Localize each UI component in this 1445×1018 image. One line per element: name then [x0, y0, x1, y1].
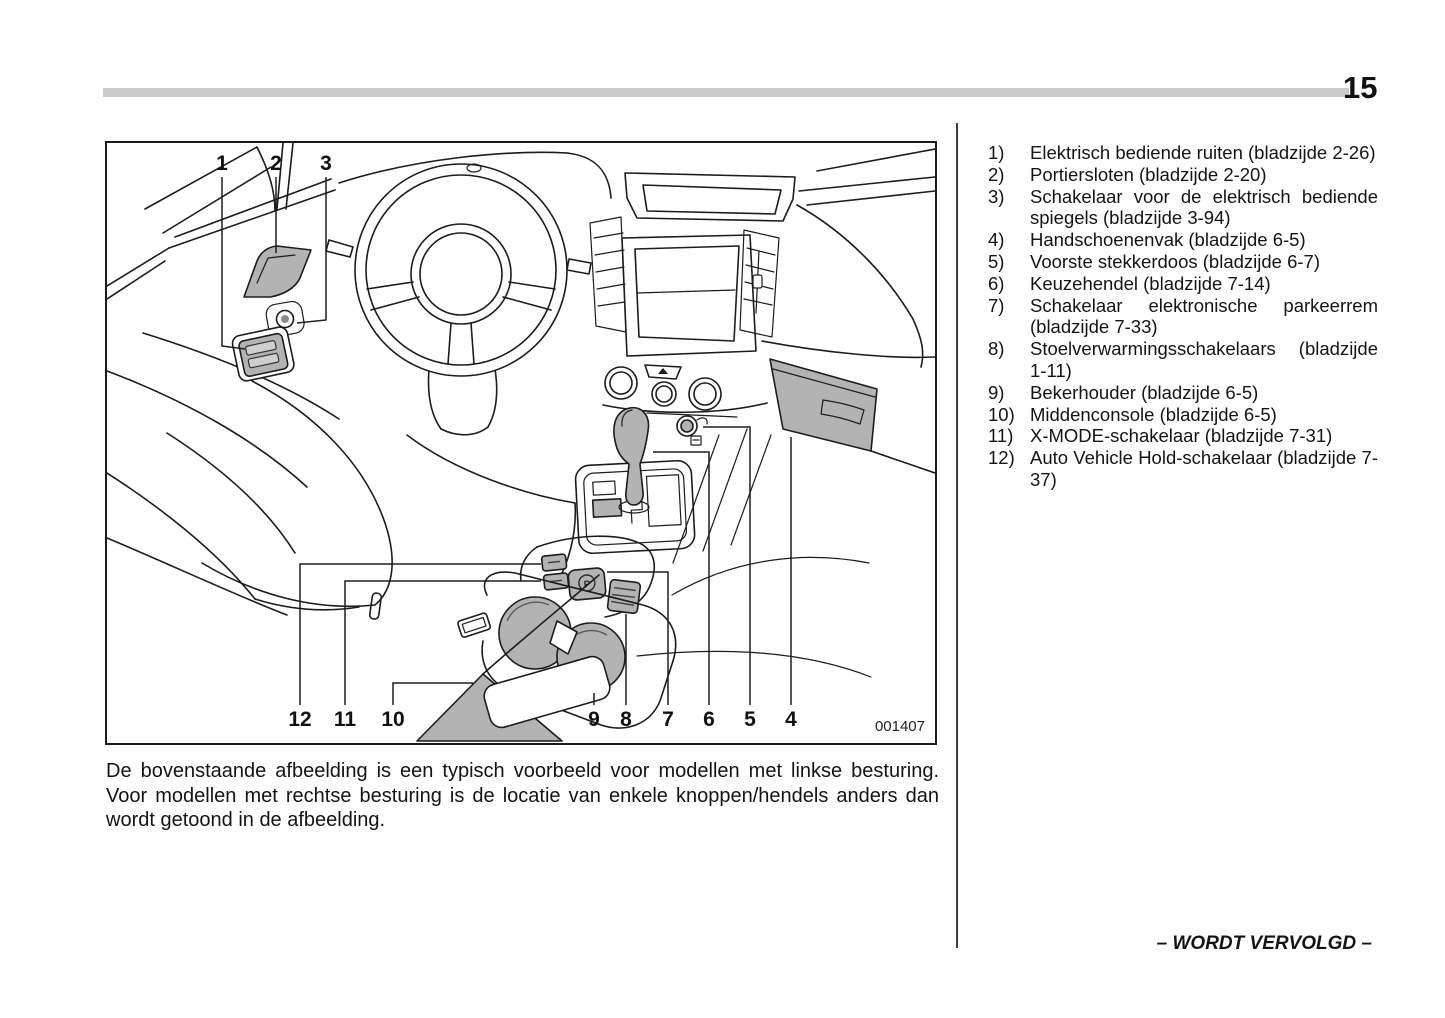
- legend-item-number: 2): [988, 164, 1030, 186]
- climate-controls: [603, 365, 767, 412]
- callout-4: 4: [785, 708, 797, 731]
- callout-8: 8: [620, 708, 632, 731]
- legend-item: 8)Stoelverwarmingsschakelaars (bladzijde…: [988, 338, 1378, 382]
- column-divider: [956, 123, 958, 948]
- glovebox: [770, 359, 935, 473]
- door-handle: [244, 246, 311, 297]
- callout-1: 1: [216, 152, 228, 175]
- center-console: P: [417, 408, 695, 741]
- legend-item-number: 1): [988, 142, 1030, 164]
- car-interior-illustration: P: [107, 143, 935, 743]
- figure-code: 001407: [875, 718, 925, 735]
- legend-item-text: Portiersloten (bladzijde 2-20): [1030, 164, 1378, 186]
- door-window-lines: [107, 143, 339, 615]
- legend-item-text: X-MODE-schakelaar (bladzijde 7-31): [1030, 425, 1378, 447]
- legend-item-number: 8): [988, 338, 1030, 360]
- legend-item-text: Bekerhouder (bladzijde 6-5): [1030, 382, 1378, 404]
- legend-item: 3)Schakelaar voor de elektrisch bediende…: [988, 186, 1378, 230]
- legend-item-number: 4): [988, 229, 1030, 251]
- legend-item: 4)Handschoenenvak (bladzijde 6-5): [988, 229, 1378, 251]
- legend-item-text: Auto Vehicle Hold-schakelaar (bladzijde …: [1030, 447, 1378, 491]
- air-vent-right: [740, 230, 779, 337]
- legend-item: 7)Schakelaar elektronische parkeerrem (b…: [988, 295, 1378, 339]
- legend-item-number: 5): [988, 251, 1030, 273]
- legend-item-number: 6): [988, 273, 1030, 295]
- parking-brake-button: P: [568, 567, 606, 600]
- legend-item-text: Handschoenenvak (bladzijde 6-5): [1030, 229, 1378, 251]
- steering-column: [407, 369, 575, 587]
- window-switch-panel: [231, 326, 295, 383]
- shift-lever: [614, 408, 649, 505]
- legend-item-text: Schakelaar elektronische parkeerrem (bla…: [1030, 295, 1378, 339]
- legend-item-text: Elektrisch bediende ruiten (bladzijde 2-…: [1030, 142, 1378, 164]
- legend-item-text: Stoelverwarmingsschakelaars (bladzijde 1…: [1030, 338, 1378, 382]
- legend-item-number: 9): [988, 382, 1030, 404]
- wiper-stalk: [567, 259, 591, 274]
- legend-item-number: 7): [988, 295, 1030, 317]
- callout-10: 10: [381, 708, 404, 731]
- callout-2: 2: [270, 152, 282, 175]
- legend-item-text: Middenconsole (bladzijde 6-5): [1030, 404, 1378, 426]
- legend-item: 10)Middenconsole (bladzijde 6-5): [988, 404, 1378, 426]
- legend-item-number: 11): [988, 425, 1030, 447]
- hazard-triangle-icon: [658, 368, 668, 374]
- legend-item: 1)Elektrisch bediende ruiten (bladzijde …: [988, 142, 1378, 164]
- legend-item: 5)Voorste stekkerdoos (bladzijde 6-7): [988, 251, 1378, 273]
- center-stack: [590, 173, 795, 445]
- header-rule: [103, 88, 1349, 97]
- callout-11: 11: [334, 708, 357, 731]
- callout-7: 7: [662, 708, 674, 731]
- legend-item-number: 10): [988, 404, 1030, 426]
- legend-item-text: Schakelaar voor de elektrisch bediende s…: [1030, 186, 1378, 230]
- air-vent-left: [590, 217, 626, 332]
- legend-list: 1)Elektrisch bediende ruiten (bladzijde …: [988, 142, 1378, 491]
- legend-item: 9)Bekerhouder (bladzijde 6-5): [988, 382, 1378, 404]
- callout-12: 12: [288, 708, 311, 731]
- footwell-lines: [637, 429, 871, 677]
- figure-caption: De bovenstaande afbeelding is een typisc…: [106, 759, 939, 833]
- callout-9: 9: [588, 708, 600, 731]
- continued-note: – WORDT VERVOLGD –: [960, 933, 1372, 955]
- console-tray: [457, 612, 491, 637]
- callout-3: 3: [320, 152, 332, 175]
- legend-item-number: 3): [988, 186, 1030, 208]
- legend-item: 11)X-MODE-schakelaar (bladzijde 7-31): [988, 425, 1378, 447]
- legend-item-number: 12): [988, 447, 1030, 469]
- legend-item: 6)Keuzehendel (bladzijde 7-14): [988, 273, 1378, 295]
- steering-wheel: [326, 164, 591, 376]
- legend-item: 2)Portiersloten (bladzijde 2-20): [988, 164, 1378, 186]
- callout-5: 5: [744, 708, 756, 731]
- callout-6: 6: [703, 708, 715, 731]
- figure-box: P: [105, 141, 937, 745]
- seat-outline: [107, 381, 392, 620]
- legend-item-text: Voorste stekkerdoos (bladzijde 6-7): [1030, 251, 1378, 273]
- power-outlet: [643, 413, 737, 445]
- turn-signal-stalk: [326, 240, 353, 257]
- legend-item: 12)Auto Vehicle Hold-schakelaar (bladzij…: [988, 447, 1378, 491]
- page-number: 15: [1343, 70, 1445, 106]
- legend-item-text: Keuzehendel (bladzijde 7-14): [1030, 273, 1378, 295]
